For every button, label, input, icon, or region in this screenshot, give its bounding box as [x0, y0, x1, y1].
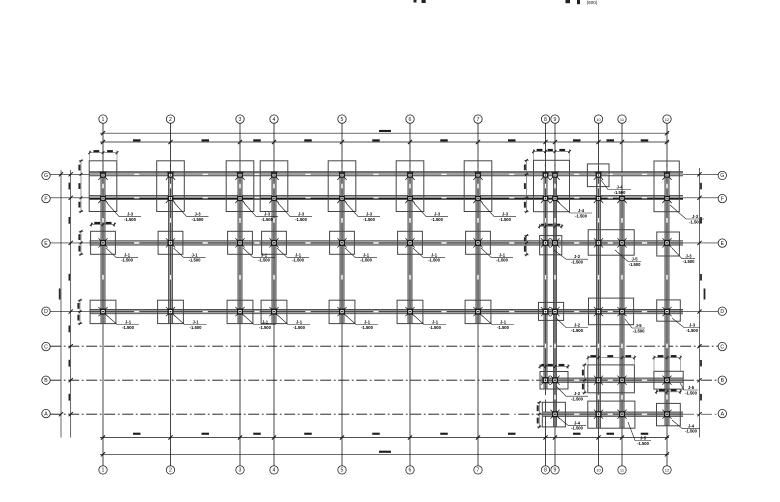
svg-text:J-5: J-5 — [640, 436, 647, 441]
svg-text:E: E — [44, 241, 48, 247]
svg-text:J-2: J-2 — [574, 254, 581, 259]
svg-text:J-1: J-1 — [363, 252, 370, 257]
svg-text:5: 5 — [341, 468, 344, 474]
svg-text:-1.500: -1.500 — [637, 441, 650, 446]
svg-text:-1.500: -1.500 — [497, 325, 510, 330]
svg-text:4: 4 — [273, 117, 276, 123]
svg-text:J-1: J-1 — [296, 320, 303, 325]
svg-text:-1.500: -1.500 — [428, 258, 441, 263]
svg-text:J-3: J-3 — [692, 214, 699, 219]
svg-text:-1.500: -1.500 — [189, 258, 202, 263]
svg-text:J-1: J-1 — [364, 320, 371, 325]
svg-text:J-1: J-1 — [500, 320, 507, 325]
svg-text:-1.500: -1.500 — [685, 390, 698, 395]
svg-text:J-1: J-1 — [261, 252, 268, 257]
svg-text:J-4: J-4 — [578, 208, 585, 213]
svg-text:-1.500: -1.500 — [261, 217, 274, 222]
svg-text:9: 9 — [554, 468, 557, 474]
svg-text:-1.500: -1.500 — [629, 262, 642, 267]
svg-text:2: 2 — [169, 468, 172, 474]
svg-text:J-3: J-3 — [434, 211, 441, 216]
svg-text:-1.500: -1.500 — [361, 325, 374, 330]
svg-text:G: G — [720, 173, 724, 179]
svg-text:D: D — [44, 309, 48, 315]
svg-text:J-3: J-3 — [685, 254, 692, 259]
svg-text:-1.500: -1.500 — [633, 328, 646, 333]
svg-text:J-3: J-3 — [264, 211, 271, 216]
svg-text:-1.500: -1.500 — [575, 213, 588, 218]
svg-text:1: 1 — [102, 468, 105, 474]
svg-text:-1.500: -1.500 — [429, 325, 442, 330]
svg-text:2: 2 — [169, 117, 172, 123]
svg-text:J-1: J-1 — [262, 320, 269, 325]
svg-text:J-3: J-3 — [366, 211, 373, 216]
svg-text:10: 10 — [596, 468, 601, 473]
svg-text:-1.500: -1.500 — [571, 426, 584, 431]
svg-text:7: 7 — [477, 117, 480, 123]
svg-text:-1.500: -1.500 — [686, 328, 699, 333]
svg-text:10: 10 — [596, 117, 601, 122]
svg-text:-1.500: -1.500 — [360, 258, 373, 263]
svg-text:J-1: J-1 — [295, 252, 302, 257]
svg-text:6: 6 — [409, 468, 412, 474]
svg-text:A: A — [44, 411, 48, 417]
svg-text:12: 12 — [665, 117, 670, 122]
svg-text:7: 7 — [477, 468, 480, 474]
svg-text:J-6: J-6 — [688, 385, 695, 390]
svg-text:8: 8 — [544, 468, 547, 474]
svg-text:-1.500: -1.500 — [571, 397, 584, 402]
svg-text:3: 3 — [239, 468, 242, 474]
svg-text:J-1: J-1 — [499, 252, 506, 257]
svg-text:J-1: J-1 — [124, 252, 131, 257]
svg-text:J-3: J-3 — [502, 211, 509, 216]
svg-text:4: 4 — [273, 468, 276, 474]
svg-text:-1.500: -1.500 — [685, 429, 698, 434]
svg-text:5: 5 — [341, 117, 344, 123]
svg-text:J-1: J-1 — [125, 320, 132, 325]
svg-text:-1.500: -1.500 — [499, 217, 512, 222]
svg-text:G: G — [44, 173, 48, 179]
svg-text:-1.500: -1.500 — [571, 260, 584, 265]
svg-text:8: 8 — [544, 117, 547, 123]
svg-text:-1.500: -1.500 — [496, 258, 509, 263]
svg-text:J-5: J-5 — [631, 257, 638, 262]
svg-text:(600): (600) — [587, 0, 598, 5]
svg-text:J-4: J-4 — [574, 420, 581, 425]
svg-text:1: 1 — [102, 117, 105, 123]
svg-text:-1.500: -1.500 — [192, 217, 205, 222]
svg-text:B: B — [44, 378, 48, 384]
svg-text:J-4: J-4 — [616, 185, 623, 190]
svg-text:-1.500: -1.500 — [124, 217, 137, 222]
svg-text:J-1: J-1 — [432, 320, 439, 325]
svg-text:B: B — [721, 378, 725, 384]
svg-text:-1.500: -1.500 — [122, 325, 135, 330]
svg-text:-1.500: -1.500 — [190, 325, 203, 330]
svg-text:-1.500: -1.500 — [571, 328, 584, 333]
svg-text:J-5: J-5 — [635, 323, 642, 328]
svg-text:J-2: J-2 — [574, 391, 581, 396]
svg-text:F: F — [44, 196, 47, 202]
svg-text:J-1: J-1 — [191, 252, 198, 257]
svg-text:J-1: J-1 — [192, 320, 199, 325]
svg-text:-1.500: -1.500 — [431, 217, 444, 222]
svg-text:-1.500: -1.500 — [259, 325, 272, 330]
svg-text:J-3: J-3 — [689, 323, 696, 328]
svg-text:A: A — [721, 411, 725, 417]
svg-text:-1.500: -1.500 — [121, 258, 134, 263]
svg-text:-1.500: -1.500 — [258, 258, 271, 263]
svg-text:-1.500: -1.500 — [295, 217, 308, 222]
svg-text:C: C — [720, 344, 724, 350]
svg-text:J-2: J-2 — [574, 323, 581, 328]
svg-text:C: C — [44, 344, 48, 350]
svg-text:-1.500: -1.500 — [292, 258, 305, 263]
svg-text:-1.500: -1.500 — [614, 190, 627, 195]
svg-text:J-4: J-4 — [688, 423, 695, 428]
svg-text:-1.500: -1.500 — [363, 217, 376, 222]
svg-text:12: 12 — [665, 468, 670, 473]
svg-text:-1.500: -1.500 — [683, 259, 696, 264]
svg-text:J-3: J-3 — [298, 211, 305, 216]
svg-text:E: E — [721, 241, 725, 247]
svg-text:J-3: J-3 — [194, 211, 201, 216]
svg-text:-1.500: -1.500 — [293, 325, 306, 330]
svg-text:9: 9 — [554, 117, 557, 123]
svg-text:J-1: J-1 — [431, 252, 438, 257]
svg-text:3: 3 — [239, 117, 242, 123]
svg-text:F: F — [721, 196, 724, 202]
svg-text:D: D — [720, 309, 724, 315]
svg-text:6: 6 — [409, 117, 412, 123]
svg-text:J-3: J-3 — [127, 211, 134, 216]
